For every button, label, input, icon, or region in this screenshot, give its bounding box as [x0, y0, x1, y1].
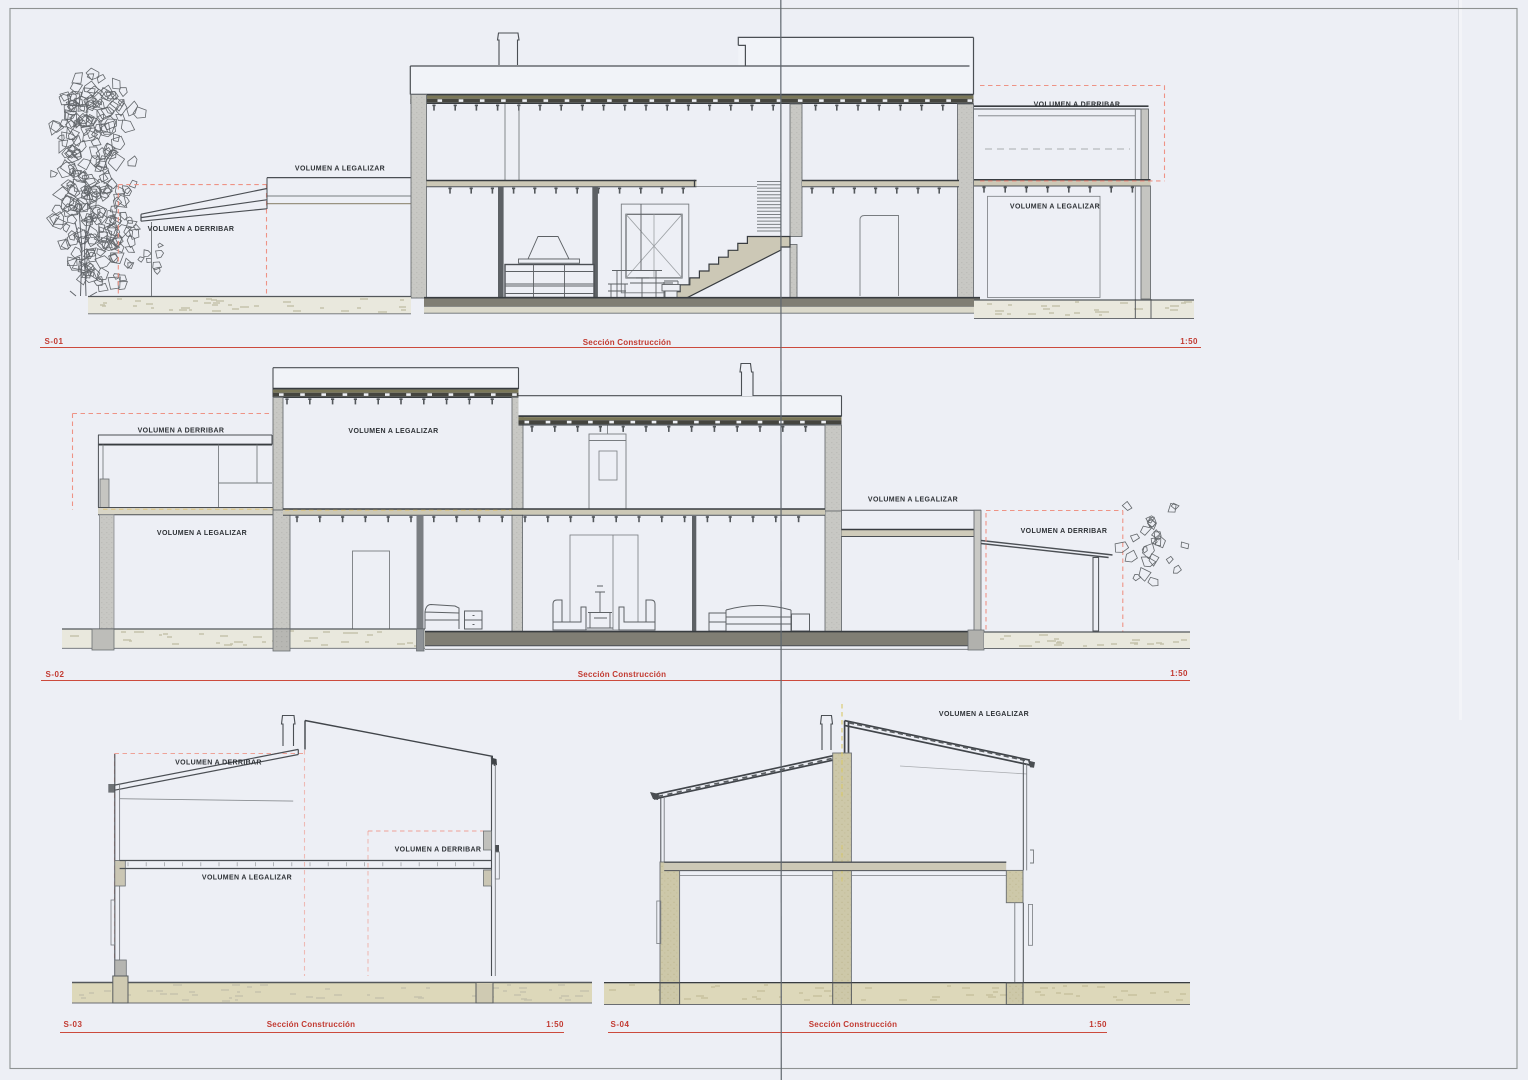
svg-text:VOLUMEN A DERRIBAR: VOLUMEN A DERRIBAR — [1034, 102, 1121, 109]
svg-text:Sección Construcción: Sección Construcción — [578, 670, 666, 679]
svg-text:1:50: 1:50 — [546, 1020, 564, 1029]
svg-text:Sección Construcción: Sección Construcción — [809, 1020, 897, 1029]
svg-text:VOLUMEN A LEGALIZAR: VOLUMEN A LEGALIZAR — [295, 166, 385, 173]
svg-text:VOLUMEN A DERRIBAR: VOLUMEN A DERRIBAR — [138, 428, 225, 435]
svg-text:VOLUMEN A DERRIBAR: VOLUMEN A DERRIBAR — [148, 226, 235, 233]
svg-text:S-04: S-04 — [611, 1020, 630, 1029]
svg-text:VOLUMEN A LEGALIZAR: VOLUMEN A LEGALIZAR — [939, 711, 1029, 718]
svg-text:VOLUMEN A LEGALIZAR: VOLUMEN A LEGALIZAR — [202, 875, 292, 882]
svg-text:VOLUMEN A LEGALIZAR: VOLUMEN A LEGALIZAR — [1010, 204, 1100, 211]
svg-text:VOLUMEN A DERRIBAR: VOLUMEN A DERRIBAR — [1021, 528, 1108, 535]
svg-text:VOLUMEN A DERRIBAR: VOLUMEN A DERRIBAR — [175, 760, 262, 767]
svg-text:Sección Construcción: Sección Construcción — [583, 338, 671, 347]
svg-text:VOLUMEN A LEGALIZAR: VOLUMEN A LEGALIZAR — [348, 428, 438, 435]
svg-text:VOLUMEN A LEGALIZAR: VOLUMEN A LEGALIZAR — [868, 497, 958, 504]
svg-text:S-01: S-01 — [45, 337, 64, 346]
svg-text:1:50: 1:50 — [1180, 337, 1198, 346]
svg-text:1:50: 1:50 — [1170, 669, 1188, 678]
svg-text:Sección Construcción: Sección Construcción — [267, 1020, 355, 1029]
svg-text:S-02: S-02 — [46, 670, 65, 679]
svg-text:VOLUMEN A DERRIBAR: VOLUMEN A DERRIBAR — [395, 847, 482, 854]
svg-text:1:50: 1:50 — [1089, 1020, 1107, 1029]
svg-text:VOLUMEN A LEGALIZAR: VOLUMEN A LEGALIZAR — [157, 530, 247, 537]
svg-text:S-03: S-03 — [64, 1020, 83, 1029]
